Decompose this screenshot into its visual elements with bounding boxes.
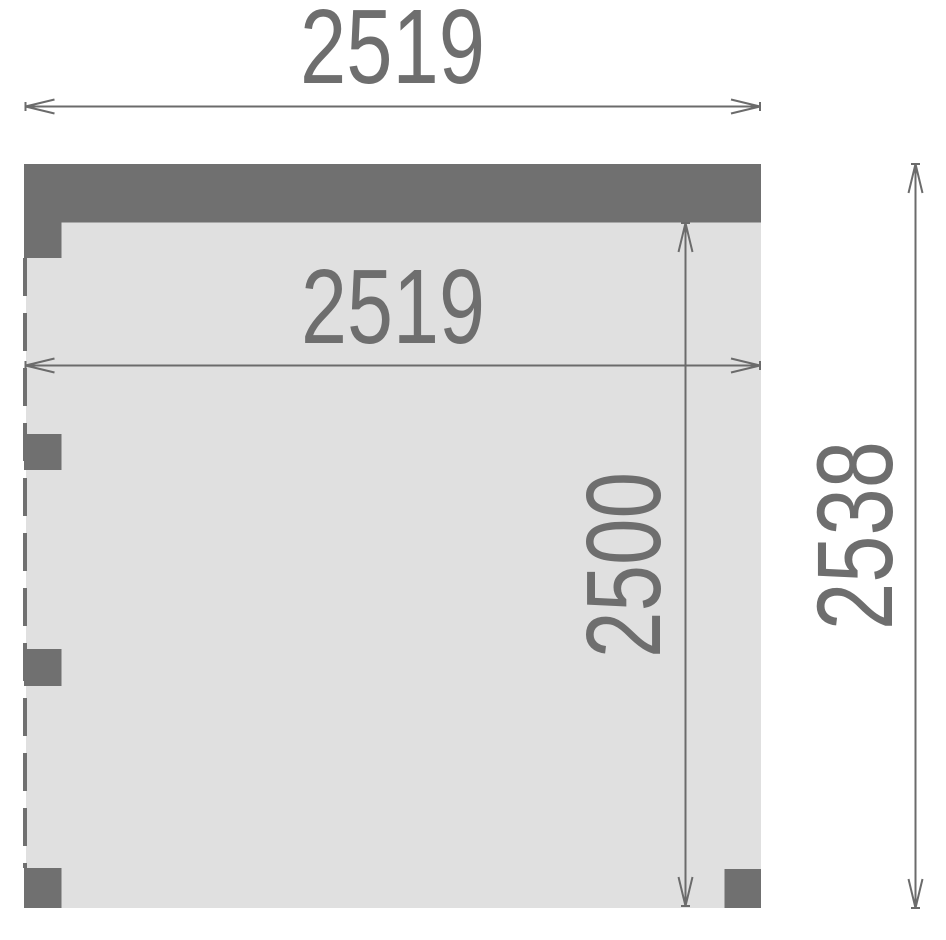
svg-text:2519: 2519	[300, 0, 485, 106]
svg-text:2500: 2500	[565, 472, 683, 658]
svg-text:2538: 2538	[794, 441, 915, 630]
svg-text:2519: 2519	[301, 248, 485, 366]
